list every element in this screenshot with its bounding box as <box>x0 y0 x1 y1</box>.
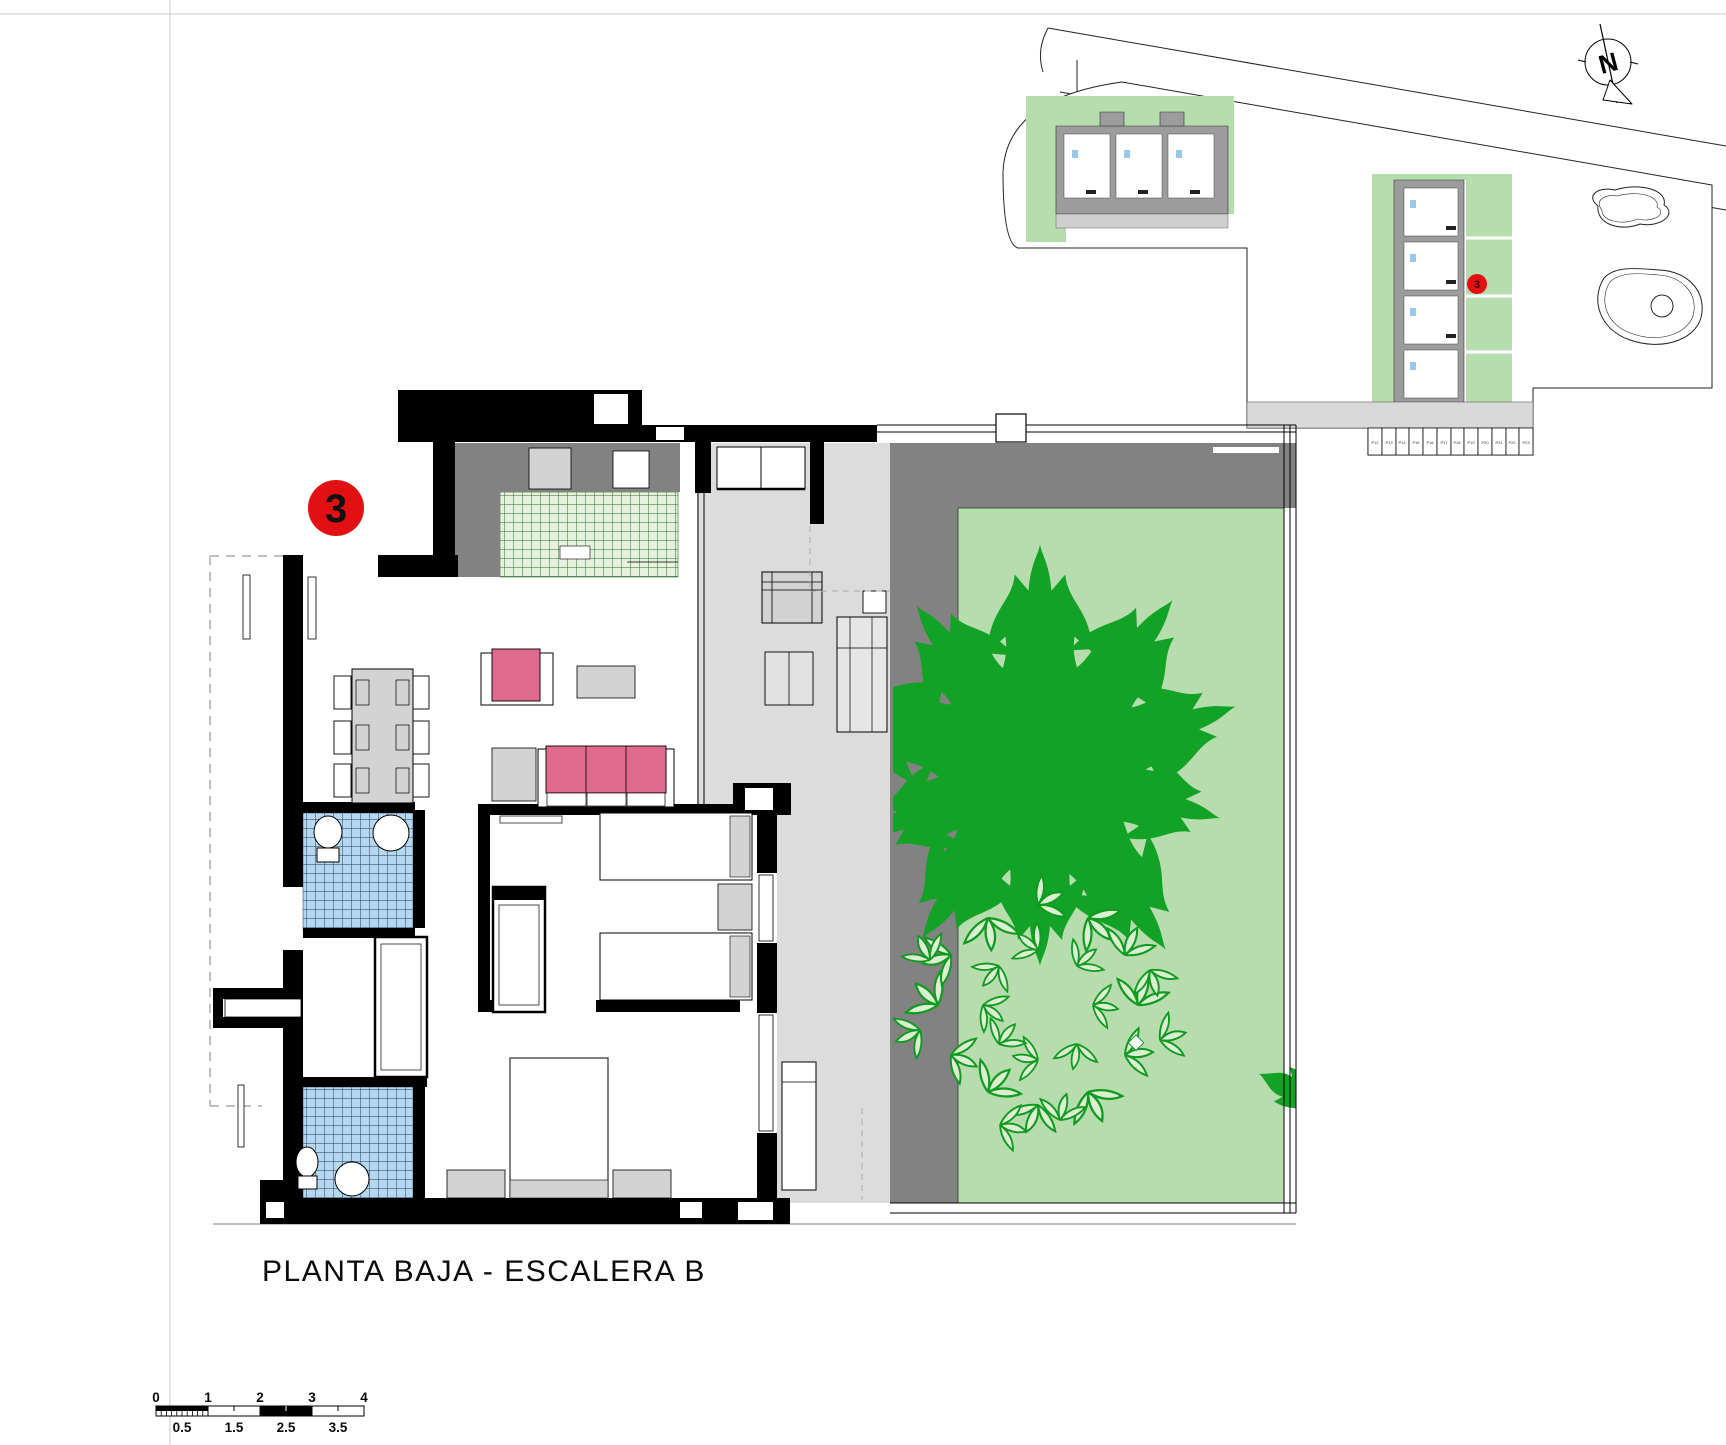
svg-text:P15: P15 <box>1412 440 1420 445</box>
svg-text:P13: P13 <box>1385 440 1393 445</box>
scale-half-tick: 3.5 <box>329 1420 348 1435</box>
scale-tick: 4 <box>360 1390 368 1405</box>
scale-tick: 3 <box>308 1390 316 1405</box>
svg-text:P22: P22 <box>1508 440 1516 445</box>
scale-tick: 0 <box>152 1390 160 1405</box>
scale-tick: 2 <box>256 1390 264 1405</box>
north-arrow-icon: N <box>1578 24 1638 104</box>
living-armchair <box>481 649 553 705</box>
terrace-armchair <box>762 572 822 623</box>
kitchen-sink-unit <box>613 451 649 488</box>
svg-text:P16: P16 <box>1426 440 1434 445</box>
svg-text:P21: P21 <box>1495 440 1503 445</box>
tv-shelf <box>500 816 562 823</box>
svg-text:P23: P23 <box>1522 440 1530 445</box>
scale-tick: 1 <box>204 1390 212 1405</box>
svg-text:P19: P19 <box>1467 440 1475 445</box>
kitchen-appliance <box>529 448 571 489</box>
fence-post <box>996 414 1026 442</box>
svg-text:P17: P17 <box>1440 440 1448 445</box>
site-plan: 3 P12 P13 P14 P15 <box>1003 24 1726 455</box>
side-table-1 <box>577 666 635 698</box>
svg-text:P14: P14 <box>1398 440 1406 445</box>
site-unit-badge-number: 3 <box>1474 279 1480 291</box>
bedroom2-furniture <box>447 1058 671 1198</box>
terrace-split-table <box>765 652 813 705</box>
scale-half-tick: 1.5 <box>225 1420 244 1435</box>
terrace-side-table <box>863 591 886 613</box>
scale-half-tick: 0.5 <box>173 1420 192 1435</box>
bedroom1-wardrobe <box>493 887 545 1012</box>
drain-channel <box>1213 447 1279 453</box>
floor-plan-sheet: 3 P12 P13 P14 P15 <box>0 0 1726 1445</box>
plan-drawing: 3 P12 P13 P14 P15 <box>0 0 1726 1445</box>
bedroom1-furniture <box>493 813 752 1012</box>
terrace-lounger-2 <box>782 1062 816 1190</box>
plan-title: PLANTA BAJA - ESCALERA B <box>262 1255 706 1288</box>
site-building-a <box>1056 112 1228 228</box>
site-unit-badge: 3 <box>1467 274 1487 294</box>
dining-set <box>334 669 429 803</box>
svg-text:P18: P18 <box>1453 440 1461 445</box>
side-table-2 <box>492 748 536 801</box>
living-sofa <box>538 746 674 807</box>
unit-badge-number: 3 <box>325 487 347 531</box>
svg-text:P12: P12 <box>1371 440 1379 445</box>
scale-half-tick: 2.5 <box>277 1420 296 1435</box>
hall-closet <box>375 937 427 1077</box>
scale-bar: 0 1 2 3 4 0.5 1.5 2.5 3.5 <box>152 1390 368 1435</box>
unit-badge: 3 <box>308 480 364 536</box>
svg-text:P20: P20 <box>1481 440 1489 445</box>
terrace-lounger <box>837 617 887 732</box>
main-floor-plan: 3 <box>210 390 1361 1224</box>
kitchen-mat <box>560 546 590 559</box>
terrace-table <box>717 447 805 489</box>
kitchen-floor-tiles <box>500 492 678 577</box>
